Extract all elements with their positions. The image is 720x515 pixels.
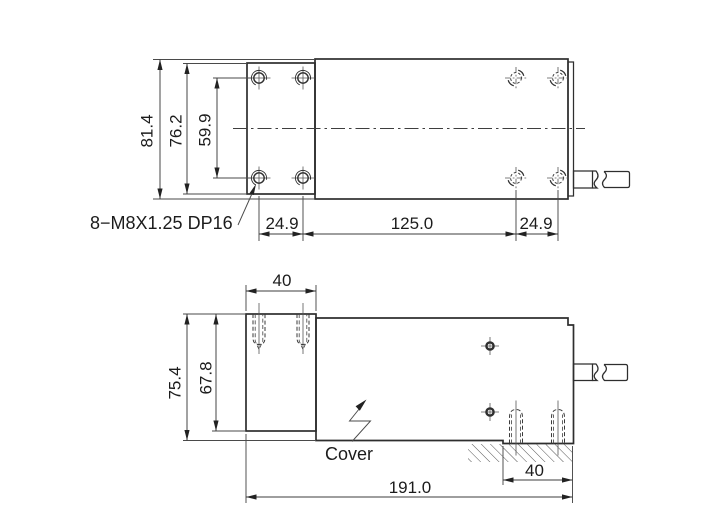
dim-text-height-overall: 81.4 <box>138 114 157 147</box>
cover-callout: Cover <box>325 400 373 465</box>
dim-text-height-plate: 76.2 <box>167 114 186 147</box>
side-hole <box>481 403 499 421</box>
dim-text-foot-width: 40 <box>525 461 544 480</box>
leader-arrowhead <box>356 400 367 411</box>
cable-stub-top <box>593 171 599 188</box>
cable-gland-top <box>574 171 593 188</box>
cable-stub-side <box>593 364 599 381</box>
leader-line <box>238 193 253 226</box>
dimension-67-8: 67.8 <box>197 314 247 431</box>
cable-gland-side <box>574 364 593 381</box>
ground-hatching <box>468 444 573 462</box>
top-view: 81.4 76.2 59.9 24.9 125.0 24.9 <box>90 59 630 241</box>
body-outline-side <box>316 318 574 444</box>
mounting-hole <box>292 67 315 90</box>
thread-note-text: 8−M8X1.25 DP16 <box>90 213 233 233</box>
mounting-block-outline <box>246 314 316 431</box>
mounting-hole <box>292 167 315 190</box>
dim-text-span: 125.0 <box>391 214 434 233</box>
tapped-hole <box>547 167 569 189</box>
dim-text-offset-right: 24.9 <box>519 214 552 233</box>
dim-text-height-overall-side: 75.4 <box>166 366 185 399</box>
tapped-hole <box>505 67 527 89</box>
cover-label-text: Cover <box>325 444 373 464</box>
drawing-svg: 81.4 76.2 59.9 24.9 125.0 24.9 <box>0 0 720 515</box>
dim-text-height-block: 67.8 <box>197 361 216 394</box>
dimension-40-top: 40 <box>246 271 316 311</box>
threaded-hole-hidden <box>297 303 309 354</box>
dimension-row-bottom: 24.9 125.0 24.9 <box>259 190 558 241</box>
dimension-75-4: 75.4 <box>166 314 317 441</box>
dim-text-offset-left: 24.9 <box>265 214 298 233</box>
dim-text-hole-spacing: 59.9 <box>196 113 215 146</box>
threaded-hole-hidden <box>253 303 265 354</box>
tapped-hole <box>547 67 569 89</box>
thread-callout: 8−M8X1.25 DP16 <box>90 184 256 233</box>
engineering-drawing-canvas: 81.4 76.2 59.9 24.9 125.0 24.9 <box>0 0 720 515</box>
dim-text-plate-width: 40 <box>273 271 292 290</box>
side-view: 40 75.4 67.8 Cover 40 <box>166 271 628 503</box>
cable-top <box>603 172 630 188</box>
dim-text-length-overall: 191.0 <box>389 478 432 497</box>
cable-side <box>603 365 628 381</box>
side-hole <box>481 337 499 355</box>
tapped-hole <box>505 167 527 189</box>
